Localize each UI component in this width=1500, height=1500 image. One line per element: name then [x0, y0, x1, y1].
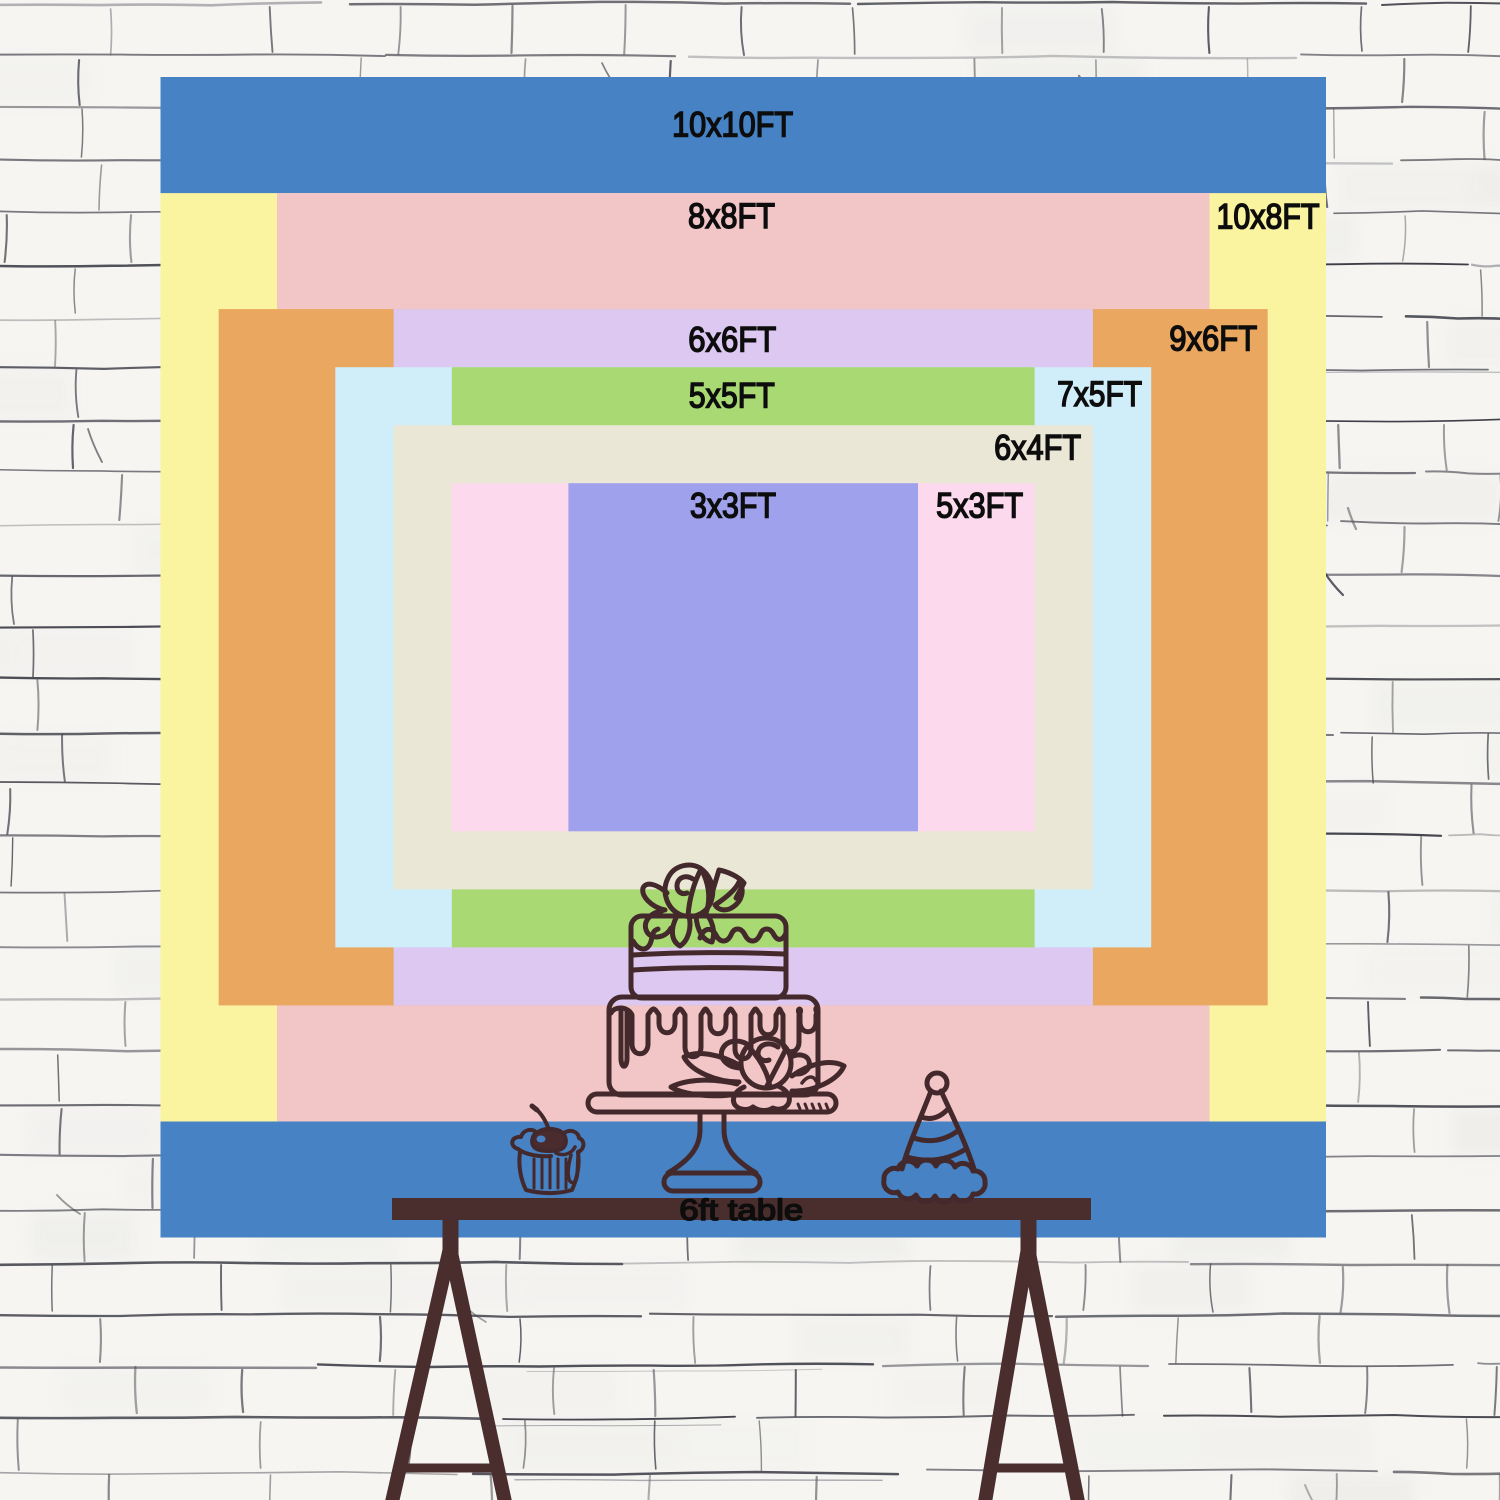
- svg-text:8x8FT: 8x8FT: [688, 197, 775, 236]
- svg-text:7x5FT: 7x5FT: [1057, 375, 1142, 414]
- svg-text:5x5FT: 5x5FT: [689, 376, 775, 415]
- svg-text:10x8FT: 10x8FT: [1217, 198, 1320, 237]
- svg-text:6x4FT: 6x4FT: [994, 428, 1081, 467]
- svg-text:6ft table: 6ft table: [679, 1194, 803, 1227]
- svg-text:5x3FT: 5x3FT: [936, 487, 1023, 526]
- svg-text:6x6FT: 6x6FT: [688, 321, 776, 360]
- svg-text:9x6FT: 9x6FT: [1169, 320, 1257, 359]
- svg-text:3x3FT: 3x3FT: [690, 487, 776, 526]
- svg-text:10x10FT: 10x10FT: [672, 106, 793, 145]
